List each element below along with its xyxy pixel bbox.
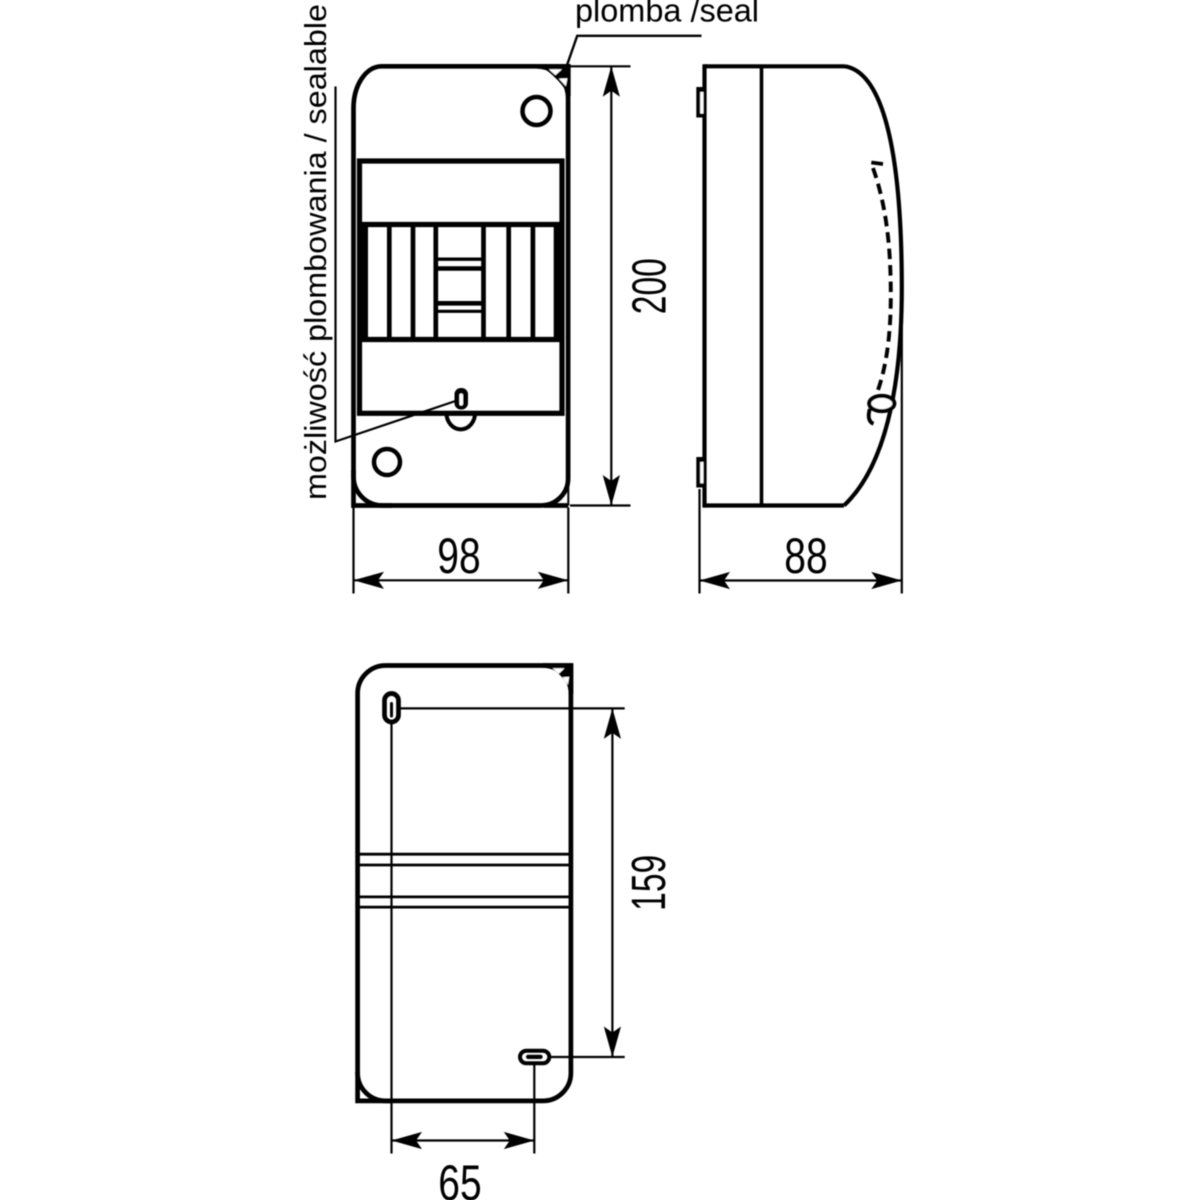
svg-text:plomba /seal: plomba /seal xyxy=(575,0,759,29)
svg-text:98: 98 xyxy=(437,527,480,584)
svg-text:200: 200 xyxy=(621,258,675,314)
svg-text:88: 88 xyxy=(784,527,827,584)
svg-text:możliwość plombowania / sealab: możliwość plombowania / sealable xyxy=(298,4,333,500)
svg-text:65: 65 xyxy=(438,1154,481,1200)
svg-text:159: 159 xyxy=(621,855,675,911)
